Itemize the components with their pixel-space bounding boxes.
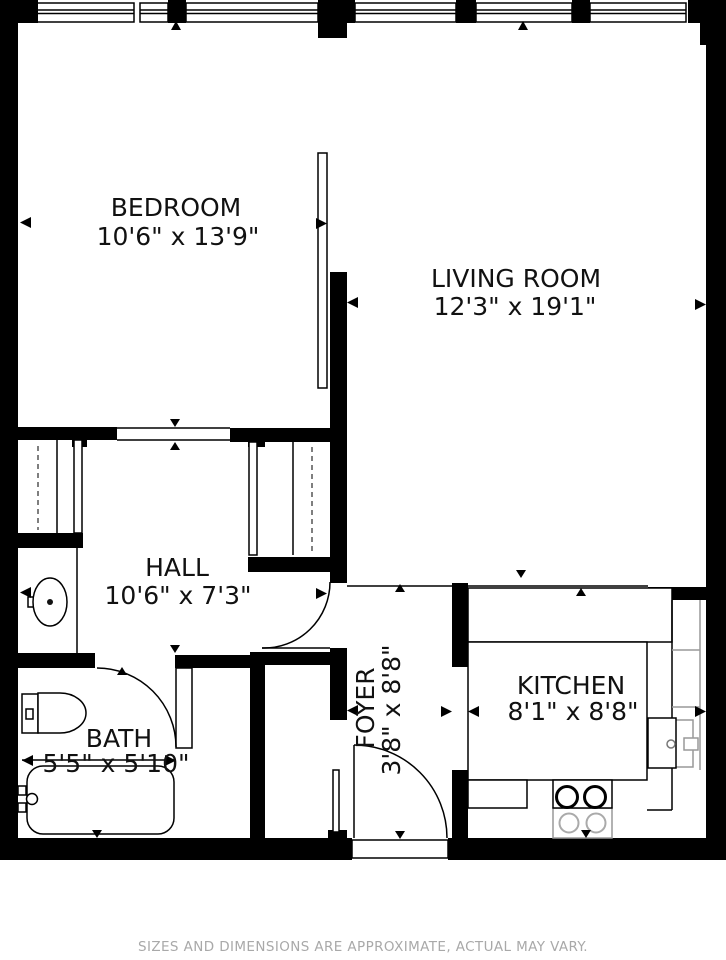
refrigerator-icon <box>648 718 698 768</box>
window-icon <box>140 3 168 22</box>
foyer-label: FOYER <box>351 667 380 748</box>
closet-slider-icon <box>74 440 82 533</box>
living-room-label: LIVING ROOM <box>431 264 601 293</box>
foyer-closet-door-icon <box>333 770 339 832</box>
kitchen-label: KITCHEN <box>517 671 625 700</box>
window-icon <box>590 3 686 22</box>
floor-plan-page: BEDROOM 10'6" x 13'9" LIVING ROOM 12'3" … <box>0 0 726 960</box>
sliding-door-icon <box>318 153 327 388</box>
bedroom-dims: 10'6" x 13'9" <box>97 222 260 251</box>
bedroom-label: BEDROOM <box>111 193 242 222</box>
disclaimer-text: SIZES AND DIMENSIONS ARE APPROXIMATE, AC… <box>138 939 588 955</box>
window-icon <box>355 3 456 22</box>
window-icon <box>476 3 572 22</box>
kitchen-dims: 8'1" x 8'8" <box>507 697 638 726</box>
window-icon <box>186 3 318 22</box>
entry-threshold <box>352 840 448 858</box>
hall-label: HALL <box>145 553 209 582</box>
hall-dims: 10'6" x 7'3" <box>105 581 252 610</box>
closet-slider-icon <box>249 442 257 555</box>
living-room-dims: 12'3" x 19'1" <box>434 292 597 321</box>
foyer-dims: 3'8" x 8'8" <box>377 644 406 775</box>
toilet-icon <box>22 693 86 733</box>
bath-dims: 5'5" x 5'10" <box>43 749 190 778</box>
stove-icon <box>553 780 612 838</box>
floor-plan: BEDROOM 10'6" x 13'9" LIVING ROOM 12'3" … <box>0 0 726 960</box>
window-icon <box>36 3 134 22</box>
